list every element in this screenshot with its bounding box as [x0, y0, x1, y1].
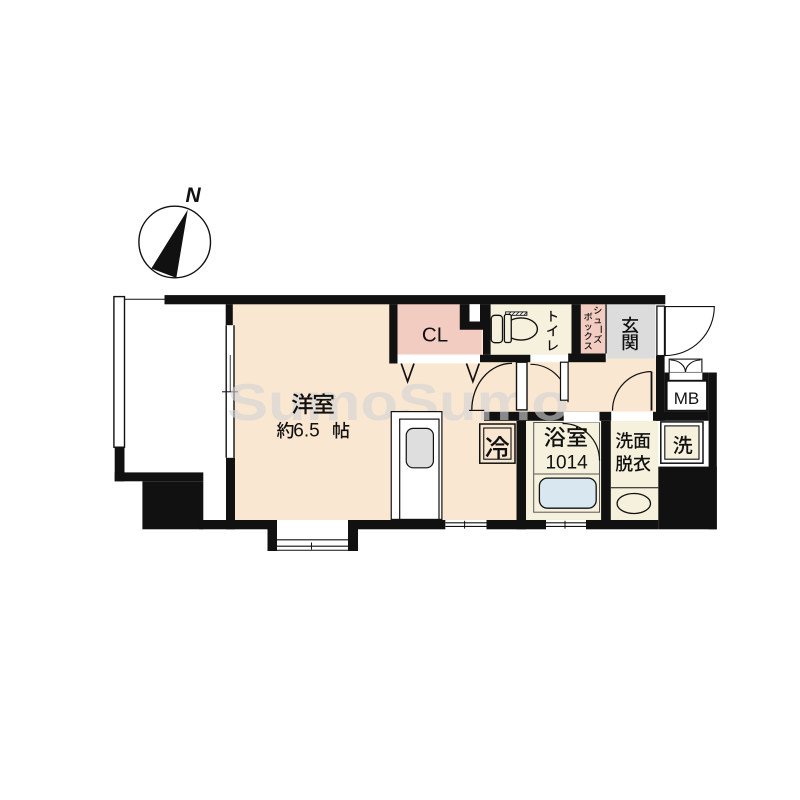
svg-text:6.5: 6.5: [293, 421, 319, 442]
svg-text:MB: MB: [674, 389, 700, 408]
svg-text:CL: CL: [422, 324, 448, 347]
svg-text:N: N: [186, 184, 202, 207]
svg-text:1014: 1014: [545, 452, 588, 473]
